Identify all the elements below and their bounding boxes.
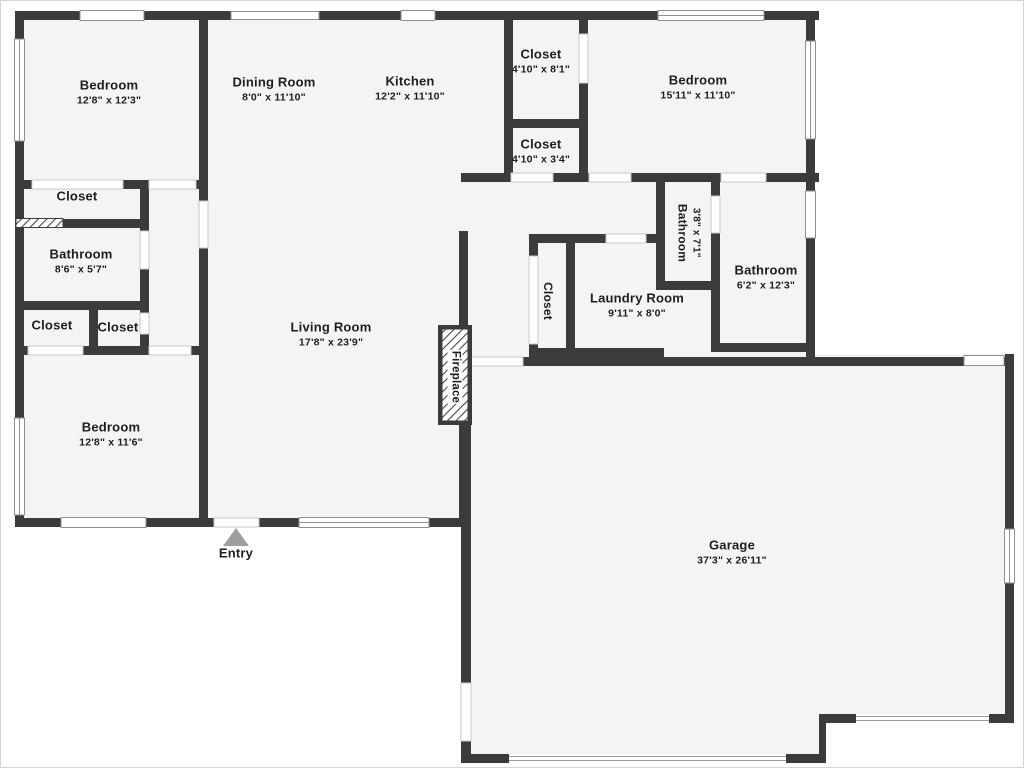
room-label-bedroom-tr: Bedroom15'11" x 11'10" — [660, 73, 735, 104]
room-label-bathroom-mid: Bathroom3'8" x 7'1" — [674, 204, 703, 262]
room-name: Closet — [57, 189, 98, 206]
room-labels: Bedroom12'8" x 12'3"Dining Room8'0" x 11… — [1, 1, 1023, 767]
room-label-bathroom-left: Bathroom8'6" x 5'7" — [50, 247, 113, 278]
room-label-closet-left: Closet — [57, 189, 98, 206]
room-name: Closet — [32, 318, 73, 335]
room-label-bedroom-tl: Bedroom12'8" x 12'3" — [77, 78, 141, 109]
room-label-closet-top: Closet4'10" x 8'1" — [512, 47, 570, 78]
room-dimensions: 15'11" x 11'10" — [660, 90, 735, 104]
room-dimensions: 8'6" x 5'7" — [50, 264, 113, 278]
room-name: Garage — [697, 538, 767, 555]
room-dimensions: 8'0" x 11'10" — [232, 92, 315, 106]
room-name: Bathroom — [735, 263, 798, 280]
room-name: Bathroom — [50, 247, 113, 264]
room-label-closet-laundry: Closet — [539, 282, 555, 320]
room-name: Bedroom — [79, 420, 143, 437]
room-label-living-room: Living Room17'8" x 23'9" — [291, 320, 372, 351]
room-name: Bedroom — [660, 73, 735, 90]
room-name: Living Room — [291, 320, 372, 337]
room-name: Dining Room — [232, 75, 315, 92]
room-name: Bathroom — [674, 204, 690, 262]
room-name: Entry — [219, 546, 253, 563]
room-name: Closet — [539, 282, 555, 320]
room-label-laundry-room: Laundry Room9'11" x 8'0" — [590, 291, 684, 322]
room-label-bathroom-right: Bathroom6'2" x 12'3" — [735, 263, 798, 294]
room-label-garage: Garage37'3" x 26'11" — [697, 538, 767, 569]
room-name: Kitchen — [375, 74, 445, 91]
room-dimensions: 9'11" x 8'0" — [590, 308, 684, 322]
floor-plan-canvas: Bedroom12'8" x 12'3"Dining Room8'0" x 11… — [0, 0, 1024, 768]
room-dimensions: 37'3" x 26'11" — [697, 555, 767, 569]
room-dimensions: 4'10" x 3'4" — [512, 154, 570, 168]
room-dimensions: 17'8" x 23'9" — [291, 337, 372, 351]
room-dimensions: 6'2" x 12'3" — [735, 280, 798, 294]
room-label-closet-bl-right: Closet — [98, 320, 139, 337]
room-label-bedroom-bl: Bedroom12'8" x 11'6" — [79, 420, 143, 451]
room-dimensions: 4'10" x 8'1" — [512, 64, 570, 78]
room-dimensions: 12'2" x 11'10" — [375, 91, 445, 105]
room-name: Bedroom — [77, 78, 141, 95]
room-name: Closet — [98, 320, 139, 337]
room-label-dining-room: Dining Room8'0" x 11'10" — [232, 75, 315, 106]
room-name: Closet — [512, 137, 570, 154]
room-dimensions: 12'8" x 12'3" — [77, 95, 141, 109]
room-dimensions: 12'8" x 11'6" — [79, 437, 143, 451]
room-label-entry: Entry — [219, 546, 253, 563]
room-name: Fireplace — [448, 350, 463, 404]
room-label-fireplace: Fireplace — [448, 350, 463, 404]
room-dimensions: 3'8" x 7'1" — [689, 204, 702, 262]
room-label-closet-upper: Closet4'10" x 3'4" — [512, 137, 570, 168]
room-label-kitchen: Kitchen12'2" x 11'10" — [375, 74, 445, 105]
room-label-closet-bl-left: Closet — [32, 318, 73, 335]
room-name: Closet — [512, 47, 570, 64]
room-name: Laundry Room — [590, 291, 684, 308]
